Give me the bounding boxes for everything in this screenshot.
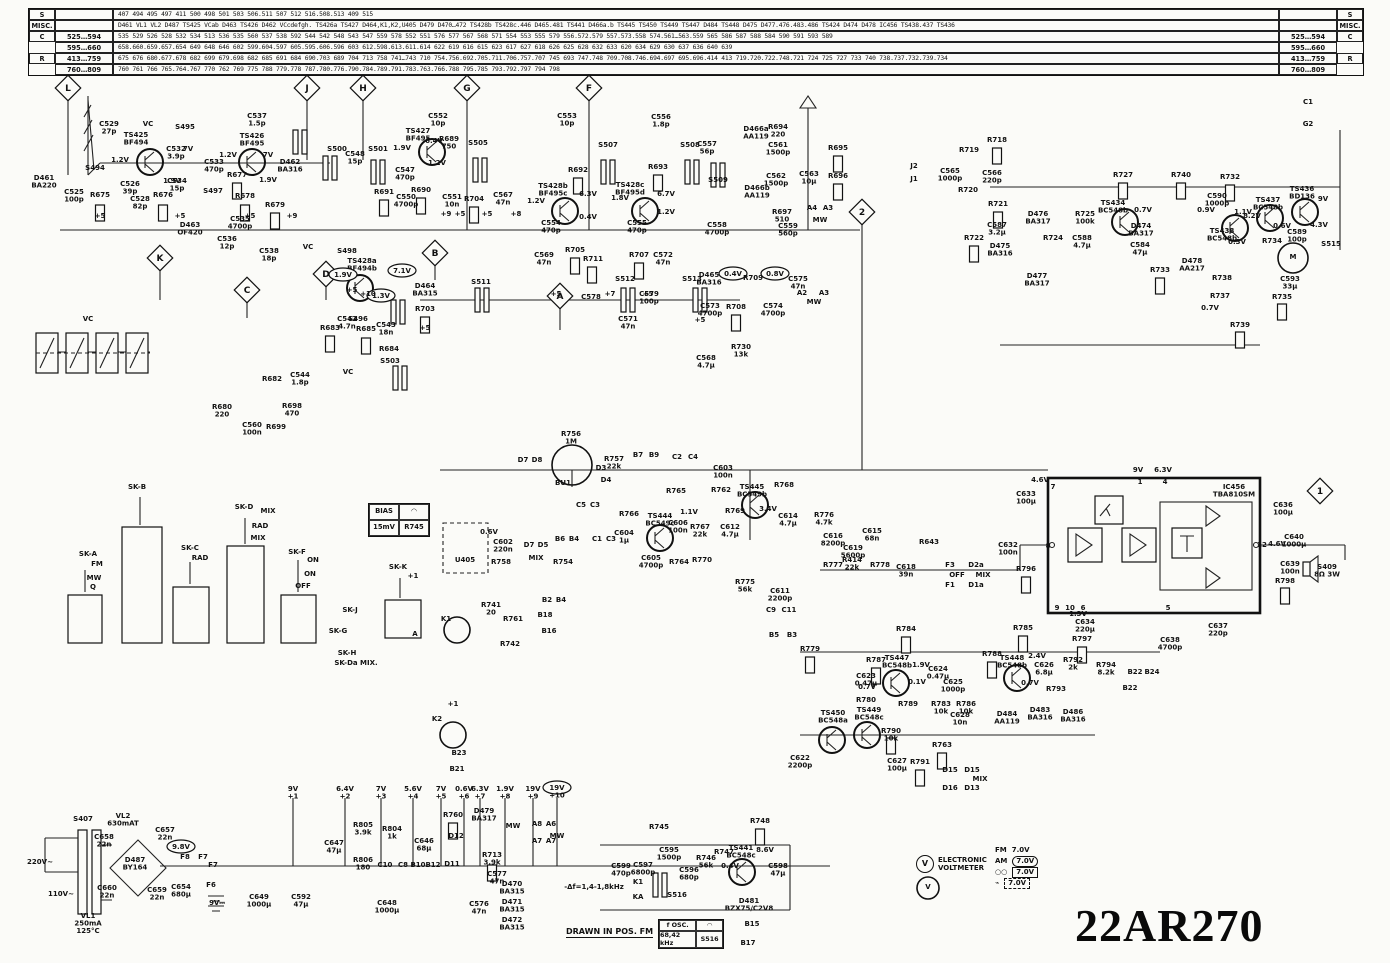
component-label: TS434BC548b <box>1098 199 1128 215</box>
component-label: D478AA217 <box>1179 257 1205 273</box>
svg-text:R740: R740 <box>1171 171 1191 179</box>
component-label: C555470p <box>627 219 647 235</box>
component-label: R780 <box>856 696 876 704</box>
svg-text:8.6V: 8.6V <box>756 846 774 854</box>
svg-text:G2: G2 <box>1303 120 1314 128</box>
resistor-symbol <box>271 213 280 229</box>
coil-symbol <box>400 300 405 324</box>
svg-text:6.7V: 6.7V <box>657 190 675 198</box>
svg-text:R74120: R74120 <box>481 601 501 617</box>
svg-text:D472BA315: D472BA315 <box>499 916 524 932</box>
component-label: S505 <box>468 139 488 147</box>
svg-text:R764: R764 <box>669 558 689 566</box>
svg-text:R41422k: R41422k <box>842 556 862 572</box>
component-label: 7.1V <box>388 264 416 277</box>
legend-voltage: 7.0V <box>1012 867 1038 877</box>
svg-text:J: J <box>304 84 308 94</box>
svg-text:C64747µ: C64747µ <box>324 839 344 855</box>
component-label: C62810n <box>950 711 970 727</box>
component-label: S407 <box>73 815 93 823</box>
component-label: +5 <box>245 212 256 220</box>
svg-text:0.4V: 0.4V <box>579 213 597 221</box>
svg-text:D465BA316: D465BA316 <box>696 271 721 287</box>
svg-text:C603100n: C603100n <box>713 464 733 480</box>
svg-text:R693: R693 <box>648 163 668 171</box>
component-label: 8 <box>1046 542 1051 550</box>
svg-text:19V+10: 19V+10 <box>549 784 565 800</box>
component-label: A2 <box>797 289 807 297</box>
svg-text:+5: +5 <box>420 324 431 332</box>
svg-text:B23: B23 <box>451 749 466 757</box>
svg-text:R737: R737 <box>1210 292 1230 300</box>
svg-text:F8: F8 <box>180 853 190 861</box>
component-label: R74120 <box>481 601 501 617</box>
component-label: K1 <box>441 615 451 623</box>
component-label: D4 <box>601 476 612 484</box>
component-label: 1.2V <box>428 159 446 167</box>
component-label: R682 <box>262 375 282 383</box>
component-label: R707 <box>629 251 649 259</box>
component-label: +8 <box>511 210 522 218</box>
svg-text:VC: VC <box>143 120 154 128</box>
svg-text:C627100µ: C627100µ <box>887 757 907 773</box>
svg-text:ON: ON <box>307 556 319 564</box>
svg-text:1.9V: 1.9V <box>334 271 352 279</box>
component-label: +1 <box>408 572 419 580</box>
svg-text:R77556k: R77556k <box>735 578 755 594</box>
svg-text:R734: R734 <box>1262 237 1282 245</box>
coil-symbol <box>601 160 606 184</box>
svg-text:C65722n: C65722n <box>155 826 175 842</box>
svg-text:C6112200p: C6112200p <box>768 587 793 603</box>
component-label: +5 <box>420 324 431 332</box>
svg-text:B4: B4 <box>569 535 579 543</box>
component-label: R796 <box>1016 565 1036 573</box>
component-label: D11 <box>444 860 460 868</box>
component-label: R727 <box>1113 171 1133 179</box>
component-label: R718 <box>987 136 1007 144</box>
svg-text:R684: R684 <box>379 345 399 353</box>
component-label: R696 <box>828 172 848 180</box>
svg-text:TS445BC549b: TS445BC549b <box>737 483 767 499</box>
component-label: D479BA317 <box>471 807 496 823</box>
svg-text:R718: R718 <box>987 136 1007 144</box>
component-label: R734 <box>1262 237 1282 245</box>
legend-mode-icon: ⌁ <box>995 879 999 887</box>
svg-text:-Δf=1,4-1,8kHz: -Δf=1,4-1,8kHz <box>564 883 624 891</box>
component-label: D486BA316 <box>1060 708 1085 724</box>
component-label: B24 <box>1144 668 1159 676</box>
component-label: J1 <box>909 175 918 183</box>
svg-text:C64668µ: C64668µ <box>414 837 434 853</box>
svg-text:D5: D5 <box>538 541 549 549</box>
resistor-symbol <box>635 263 644 279</box>
svg-text:SK-J: SK-J <box>342 606 357 614</box>
component-label: 0.7V <box>1201 304 1219 312</box>
svg-text:R695: R695 <box>828 144 848 152</box>
oscillator-box: f OSC. ◠ 68,42 kHz S516 <box>658 919 724 949</box>
component-label: 0.7V <box>1021 679 1039 687</box>
svg-text:S503: S503 <box>380 357 400 365</box>
svg-text:SK-F: SK-F <box>288 548 306 556</box>
component-label: S516 <box>667 891 687 899</box>
component-label: D470BA315 <box>499 880 524 896</box>
voltage-legend-row: ⌁7.0V <box>995 878 1115 889</box>
component-label: R797 <box>1072 635 1092 643</box>
svg-text:R748: R748 <box>750 817 770 825</box>
resistor-symbol <box>988 662 997 678</box>
resistor-symbol <box>1156 278 1165 294</box>
svg-text:TS448BC548b: TS448BC548b <box>997 654 1027 670</box>
svg-text:A7: A7 <box>532 837 542 845</box>
svg-text:+10: +10 <box>360 290 376 298</box>
svg-text:7V+5: 7V+5 <box>436 785 447 801</box>
component-label: SK-H <box>338 649 357 657</box>
component-label: R748 <box>750 817 770 825</box>
svg-text:R754: R754 <box>553 558 573 566</box>
svg-text:+9: +9 <box>287 212 298 220</box>
connector-diamond: 1 <box>1307 478 1332 503</box>
component-label: R41422k <box>842 556 862 572</box>
svg-text:C65822n: C65822n <box>94 833 114 849</box>
component-label: C65722n <box>155 826 175 842</box>
component-label: C53415p <box>167 177 187 193</box>
component-label: +5 <box>175 212 186 220</box>
coil-symbol <box>473 158 478 182</box>
svg-text:D466aAA119: D466aAA119 <box>743 125 769 141</box>
svg-text:6.3V+7: 6.3V+7 <box>471 785 489 801</box>
component-label: F6 <box>206 881 216 889</box>
component-label: C1 <box>1303 98 1313 106</box>
svg-text:R742: R742 <box>500 640 520 648</box>
round-symbol <box>440 722 466 748</box>
component-label: C56310µ <box>799 170 819 186</box>
svg-text:C525100p: C525100p <box>64 188 84 204</box>
component-label: +5 <box>695 316 706 324</box>
component-label: F7 <box>198 853 208 861</box>
svg-text:SK-G: SK-G <box>329 627 348 635</box>
svg-text:C5873.2µ: C5873.2µ <box>987 221 1007 237</box>
component-label: C6144.7µ <box>778 512 798 528</box>
component-label: 2.4V <box>1028 652 1046 660</box>
component-label: C6491000µ <box>247 893 272 909</box>
svg-text:D462BA316: D462BA316 <box>277 158 302 174</box>
component-label: R761 <box>503 615 523 623</box>
component-label: 220V~ <box>27 858 53 866</box>
connector-diamond: G <box>454 75 479 100</box>
component-label: R733 <box>1150 266 1170 274</box>
svg-text:RAD: RAD <box>252 522 269 530</box>
component-label: R692 <box>568 166 588 174</box>
svg-text:S407: S407 <box>73 815 93 823</box>
svg-text:R789: R789 <box>898 700 918 708</box>
svg-text:K2: K2 <box>432 715 442 723</box>
svg-text:+5: +5 <box>245 212 256 220</box>
svg-text:+1: +1 <box>408 572 419 580</box>
component-label: S512 <box>615 275 635 283</box>
component-label: TS437BC548b <box>1253 196 1283 212</box>
component-label: VL1250mA125°C <box>74 912 102 935</box>
svg-text:C6222200p: C6222200p <box>788 754 813 770</box>
svg-text:R682: R682 <box>262 375 282 383</box>
coil-symbol <box>402 366 407 390</box>
component-label: +5 <box>643 290 654 298</box>
svg-text:C6144.7µ: C6144.7µ <box>778 512 798 528</box>
component-label: 1.1V <box>680 508 698 516</box>
svg-text:R779: R779 <box>800 645 820 653</box>
component-label: S509 <box>708 176 728 184</box>
legend-mode-icon: FM <box>995 846 1007 854</box>
svg-text:B15: B15 <box>744 920 759 928</box>
component-label: C560100n <box>242 421 262 437</box>
component-label: C58447µ <box>1130 241 1150 257</box>
svg-text:D470BA315: D470BA315 <box>499 880 524 896</box>
component-label: S495 <box>175 123 195 131</box>
svg-text:A: A <box>412 630 418 638</box>
component-label: S497 <box>203 187 223 195</box>
component-label: R8053.9k <box>353 821 373 837</box>
svg-text:MIX: MIX <box>973 775 989 783</box>
connector-diamond: 2 <box>849 199 874 224</box>
svg-text:C1: C1 <box>592 535 602 543</box>
svg-text:+8: +8 <box>511 210 522 218</box>
svg-text:TS450BC548a: TS450BC548a <box>818 709 848 725</box>
component-label: C5873.2µ <box>987 221 1007 237</box>
component-label: D471BA315 <box>499 898 524 914</box>
tuning-gang[interactable] <box>36 333 150 373</box>
component-label: D472BA315 <box>499 916 524 932</box>
svg-text:D471BA315: D471BA315 <box>499 898 524 914</box>
component-label: 7V+3 <box>376 785 387 801</box>
component-label: C53818p <box>259 247 279 263</box>
svg-text:C11: C11 <box>782 606 797 614</box>
svg-text:C3: C3 <box>590 501 600 509</box>
svg-text:D479BA317: D479BA317 <box>471 807 496 823</box>
svg-text:5: 5 <box>1166 604 1171 612</box>
component-label: C55210p <box>428 112 448 128</box>
svg-text:7V+3: 7V+3 <box>376 785 387 801</box>
svg-text:B12: B12 <box>425 861 440 869</box>
component-label: 4.6V <box>1031 476 1049 484</box>
component-label: MIX <box>973 775 989 783</box>
model-number: 22AR270 <box>1075 900 1263 953</box>
svg-text:A3: A3 <box>819 289 829 297</box>
component-label: R769 <box>725 507 745 515</box>
component-label: Q <box>90 583 96 591</box>
svg-text:L: L <box>65 84 71 94</box>
svg-text:C554470p: C554470p <box>541 219 561 235</box>
svg-text:+9: +9 <box>441 210 452 218</box>
component-label: R8041k <box>382 825 402 841</box>
svg-text:R675: R675 <box>90 191 110 199</box>
component-label: C6266.8µ <box>1034 661 1054 677</box>
component-label: SK-C <box>181 544 199 552</box>
component-label: +1 <box>448 700 459 708</box>
svg-text:F6: F6 <box>206 881 216 889</box>
component-label: SK-J <box>342 606 357 614</box>
svg-text:C6401000µ: C6401000µ <box>1282 533 1307 549</box>
component-label: 6.4V+2 <box>336 785 354 801</box>
svg-text:C636100µ: C636100µ <box>1273 501 1293 517</box>
svg-text:7.1V: 7.1V <box>393 267 411 275</box>
component-label: R699 <box>266 423 286 431</box>
svg-text:1: 1 <box>1317 487 1323 497</box>
svg-text:1.2V: 1.2V <box>657 208 675 216</box>
svg-text:R791: R791 <box>910 758 930 766</box>
svg-text:R78310k: R78310k <box>931 700 951 716</box>
svg-text:R745: R745 <box>649 823 669 831</box>
svg-text:SK-D: SK-D <box>235 503 254 511</box>
svg-text:1.2V: 1.2V <box>219 151 237 159</box>
component-label: D3 <box>596 464 607 472</box>
svg-text:C578: C578 <box>581 293 601 301</box>
resistor-symbol <box>654 175 663 191</box>
svg-text:9: 9 <box>1055 604 1060 612</box>
component-label: A <box>412 630 418 638</box>
component-label: TS447BC548b <box>882 654 912 670</box>
component-label: C603100n <box>713 464 733 480</box>
component-label: D13 <box>964 784 980 792</box>
svg-text:R699: R699 <box>266 423 286 431</box>
svg-text:+5: +5 <box>643 290 654 298</box>
svg-text:C6054700p: C6054700p <box>639 554 664 570</box>
component-label: R643 <box>919 538 939 546</box>
svg-text:R778: R778 <box>870 561 890 569</box>
component-label: 4.3V <box>1310 221 1328 229</box>
svg-text:C599470p: C599470p <box>611 862 631 878</box>
component-label: C599470p <box>611 862 631 878</box>
svg-text:VL2630mAT: VL2630mAT <box>107 812 139 828</box>
component-label: 9.8V <box>167 840 195 853</box>
component-label: C5584700p <box>705 221 730 237</box>
svg-text:G: G <box>463 84 470 94</box>
svg-text:C6266.8µ: C6266.8µ <box>1034 661 1054 677</box>
svg-text:C8: C8 <box>398 861 408 869</box>
svg-text:R680220: R680220 <box>212 403 232 419</box>
component-label: J2 <box>909 162 918 170</box>
component-label: D1a <box>968 581 984 589</box>
component-label: SK-Da MIX. <box>334 659 377 667</box>
component-label: C639100n <box>1280 560 1300 576</box>
svg-text:TS441BC548c: TS441BC548c <box>726 844 755 860</box>
svg-text:B22: B22 <box>1127 668 1142 676</box>
svg-text:D483BA316: D483BA316 <box>1027 706 1052 722</box>
component-label: OFF <box>949 571 965 579</box>
svg-text:C5976800p: C5976800p <box>631 861 656 877</box>
component-label: R7133.9k <box>482 851 502 867</box>
component-label: MIX <box>529 554 545 562</box>
svg-text:D7: D7 <box>518 456 529 464</box>
component-label: VC <box>143 120 154 128</box>
svg-text:D461BA220: D461BA220 <box>31 174 56 190</box>
component-label: R777 <box>823 561 843 569</box>
voltage-legend-row: AM7.0V <box>995 856 1115 867</box>
svg-text:MIX: MIX <box>529 554 545 562</box>
svg-text:D477BA317: D477BA317 <box>1024 272 1049 288</box>
svg-text:9.8V: 9.8V <box>172 843 190 851</box>
component-label: 0.7V <box>858 683 876 691</box>
component-label: B2 <box>542 596 552 604</box>
svg-text:C61839n: C61839n <box>896 563 916 579</box>
component-label: TS449BC548c <box>854 706 883 722</box>
svg-text:D12: D12 <box>448 832 464 840</box>
svg-text:C555470p: C555470p <box>627 219 647 235</box>
component-label: A7 <box>546 837 556 845</box>
svg-text:B6: B6 <box>555 535 565 543</box>
svg-text:C6041µ: C6041µ <box>614 529 634 545</box>
svg-text:D484AA119: D484AA119 <box>994 710 1020 726</box>
component-label: D466aAA119 <box>743 125 769 141</box>
connector-diamond: J <box>294 75 319 100</box>
svg-text:C57647n: C57647n <box>469 900 489 916</box>
svg-text:TS428bBF495c: TS428bBF495c <box>538 182 567 198</box>
svg-text:R760: R760 <box>443 811 463 819</box>
component-label: R768 <box>774 481 794 489</box>
svg-text:C5441.8p: C5441.8p <box>290 371 310 387</box>
resistor-symbol <box>1177 183 1186 199</box>
svg-text:C52882p: C52882p <box>130 195 150 211</box>
svg-text:S516: S516 <box>667 891 687 899</box>
coil-symbol <box>482 158 487 182</box>
svg-text:B17: B17 <box>740 939 755 947</box>
resistor-symbol <box>834 156 843 172</box>
resistor-symbol <box>571 258 580 274</box>
component-label: D477BA317 <box>1024 272 1049 288</box>
svg-text:9V⎓: 9V⎓ <box>209 899 225 907</box>
component-label: S515 <box>1321 240 1341 248</box>
svg-text:C5744700p: C5744700p <box>761 302 786 318</box>
svg-text:C65922n: C65922n <box>147 886 167 902</box>
component-label: B15 <box>744 920 759 928</box>
connector-diamond: H <box>350 75 375 100</box>
legend-mode-icon: AM <box>995 857 1007 865</box>
component-label: R793 <box>1046 685 1066 693</box>
voltmeter-icon: V <box>916 855 934 873</box>
component-label: FM <box>91 560 103 568</box>
component-label: TS441BC548c <box>726 844 755 860</box>
resistor-symbol <box>806 657 815 673</box>
component-label: 7 <box>1051 483 1056 491</box>
component-label: C525100p <box>64 188 84 204</box>
svg-text:A2: A2 <box>797 289 807 297</box>
svg-text:R683: R683 <box>320 324 340 332</box>
osc-coil-icon: ◠ <box>696 920 723 931</box>
svg-text:+1: +1 <box>448 700 459 708</box>
component-label: 1.2V <box>527 197 545 205</box>
svg-text:R7133.9k: R7133.9k <box>482 851 502 867</box>
component-label: SK-D <box>235 503 254 511</box>
component-label: C57647n <box>469 900 489 916</box>
component-label: S503 <box>380 357 400 365</box>
component-label: C53612p <box>217 235 237 251</box>
svg-text:C52639p: C52639p <box>120 180 140 196</box>
svg-text:9V: 9V <box>1133 466 1144 474</box>
component-label: 0.4V <box>579 213 597 221</box>
svg-text:U405: U405 <box>455 556 475 564</box>
svg-text:R762: R762 <box>711 486 731 494</box>
component-label: 7V <box>263 151 274 159</box>
component-label: R745 <box>649 823 669 831</box>
coil-symbol <box>693 288 698 312</box>
component-label: R691 <box>374 188 394 196</box>
svg-text:C602220n: C602220n <box>493 538 513 554</box>
component-label: D15 <box>964 766 980 774</box>
svg-text:D1a: D1a <box>968 581 984 589</box>
component-label: B10 <box>410 861 425 869</box>
component-label: R721 <box>988 200 1008 208</box>
svg-text:C654680µ: C654680µ <box>171 883 191 899</box>
component-label: TS426BF495 <box>240 132 265 148</box>
